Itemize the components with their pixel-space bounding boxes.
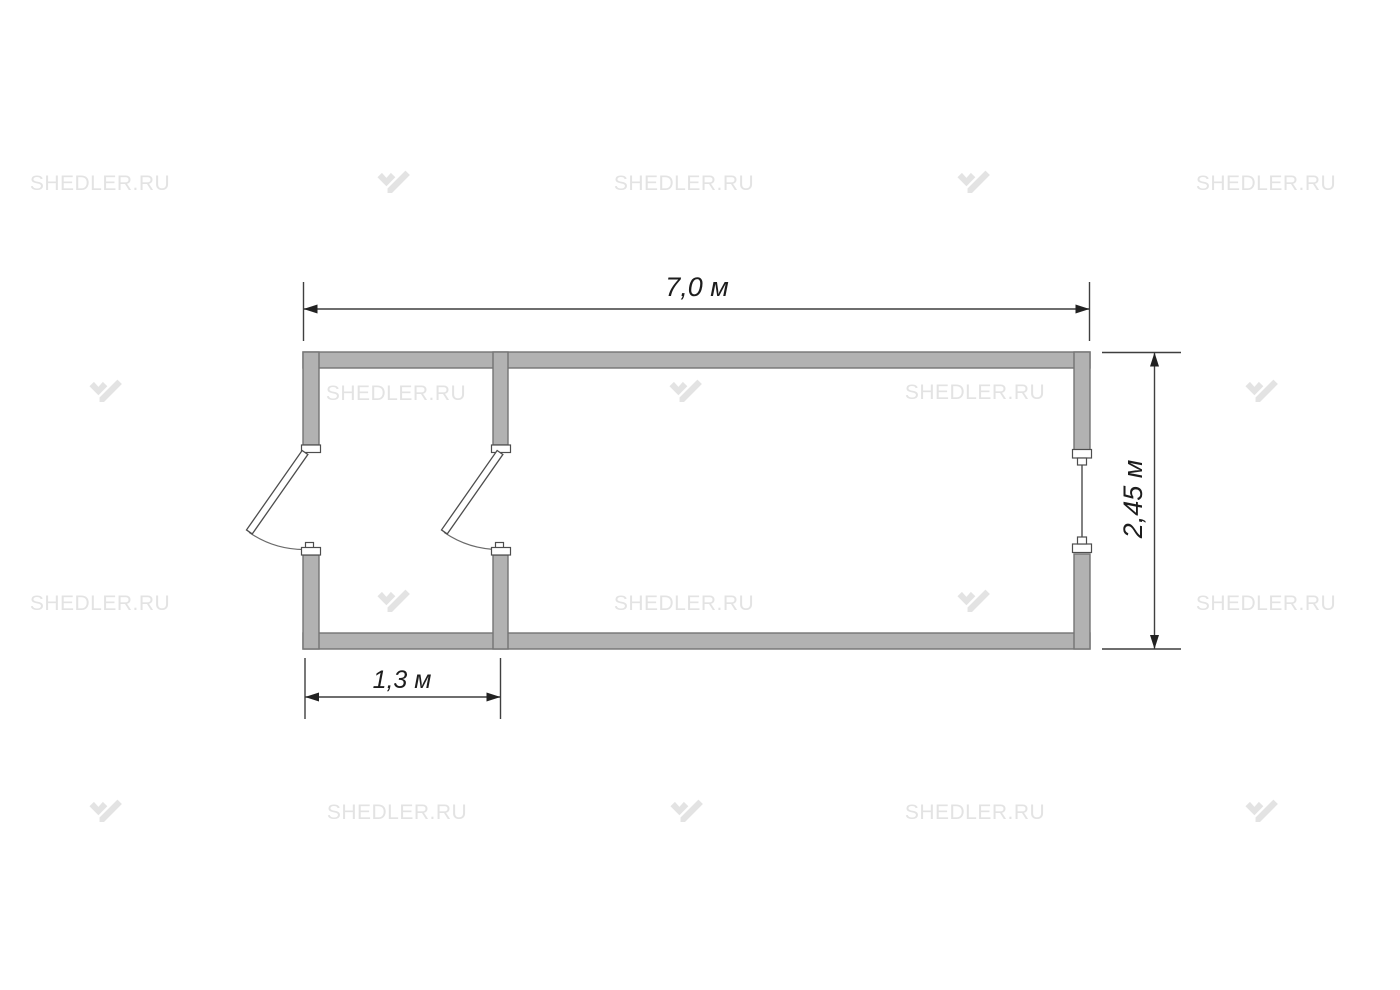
wall-right-upper — [1074, 352, 1090, 450]
entry-door-leaf — [246, 450, 307, 533]
window-frame-stub — [1078, 458, 1087, 465]
entry-door-swing-arc — [249, 532, 305, 549]
arrowhead-left — [304, 305, 318, 314]
partition-upper — [493, 352, 508, 445]
wall-top — [303, 352, 1090, 368]
exterior-walls — [303, 352, 1090, 649]
partition-lower — [493, 555, 508, 649]
door-jamb — [492, 445, 511, 453]
arrowhead-right — [1076, 305, 1090, 314]
wall-bottom — [303, 633, 1090, 649]
window — [1073, 450, 1092, 553]
arrowhead-bottom — [1150, 635, 1159, 649]
arrowhead-left — [305, 693, 319, 702]
window-frame-stub — [1078, 537, 1087, 544]
entry-door — [246, 445, 320, 555]
interior-door-leaf — [441, 450, 502, 533]
dimension-label-entry-room-width: 1,3 м — [332, 662, 472, 698]
dimension-label-overall-length: 7,0 м — [627, 269, 767, 305]
door-jamb — [492, 548, 511, 556]
partition-wall — [493, 352, 508, 649]
floor-plan-drawing — [0, 0, 1400, 990]
window-sill — [1073, 544, 1092, 553]
window-sill — [1073, 450, 1092, 459]
wall-left-lower — [303, 555, 319, 649]
door-jamb — [302, 548, 321, 556]
wall-right-lower — [1074, 554, 1090, 649]
arrowhead-right — [487, 693, 501, 702]
dimension-label-overall-width: 2,45 м — [1115, 429, 1151, 569]
arrowhead-top — [1150, 353, 1159, 367]
interior-door — [441, 445, 510, 555]
floor-plan-canvas: SHEDLER.RU SHEDLER.RU SHEDLER.RU SHEDLER… — [0, 0, 1400, 990]
wall-left-upper — [303, 352, 319, 445]
